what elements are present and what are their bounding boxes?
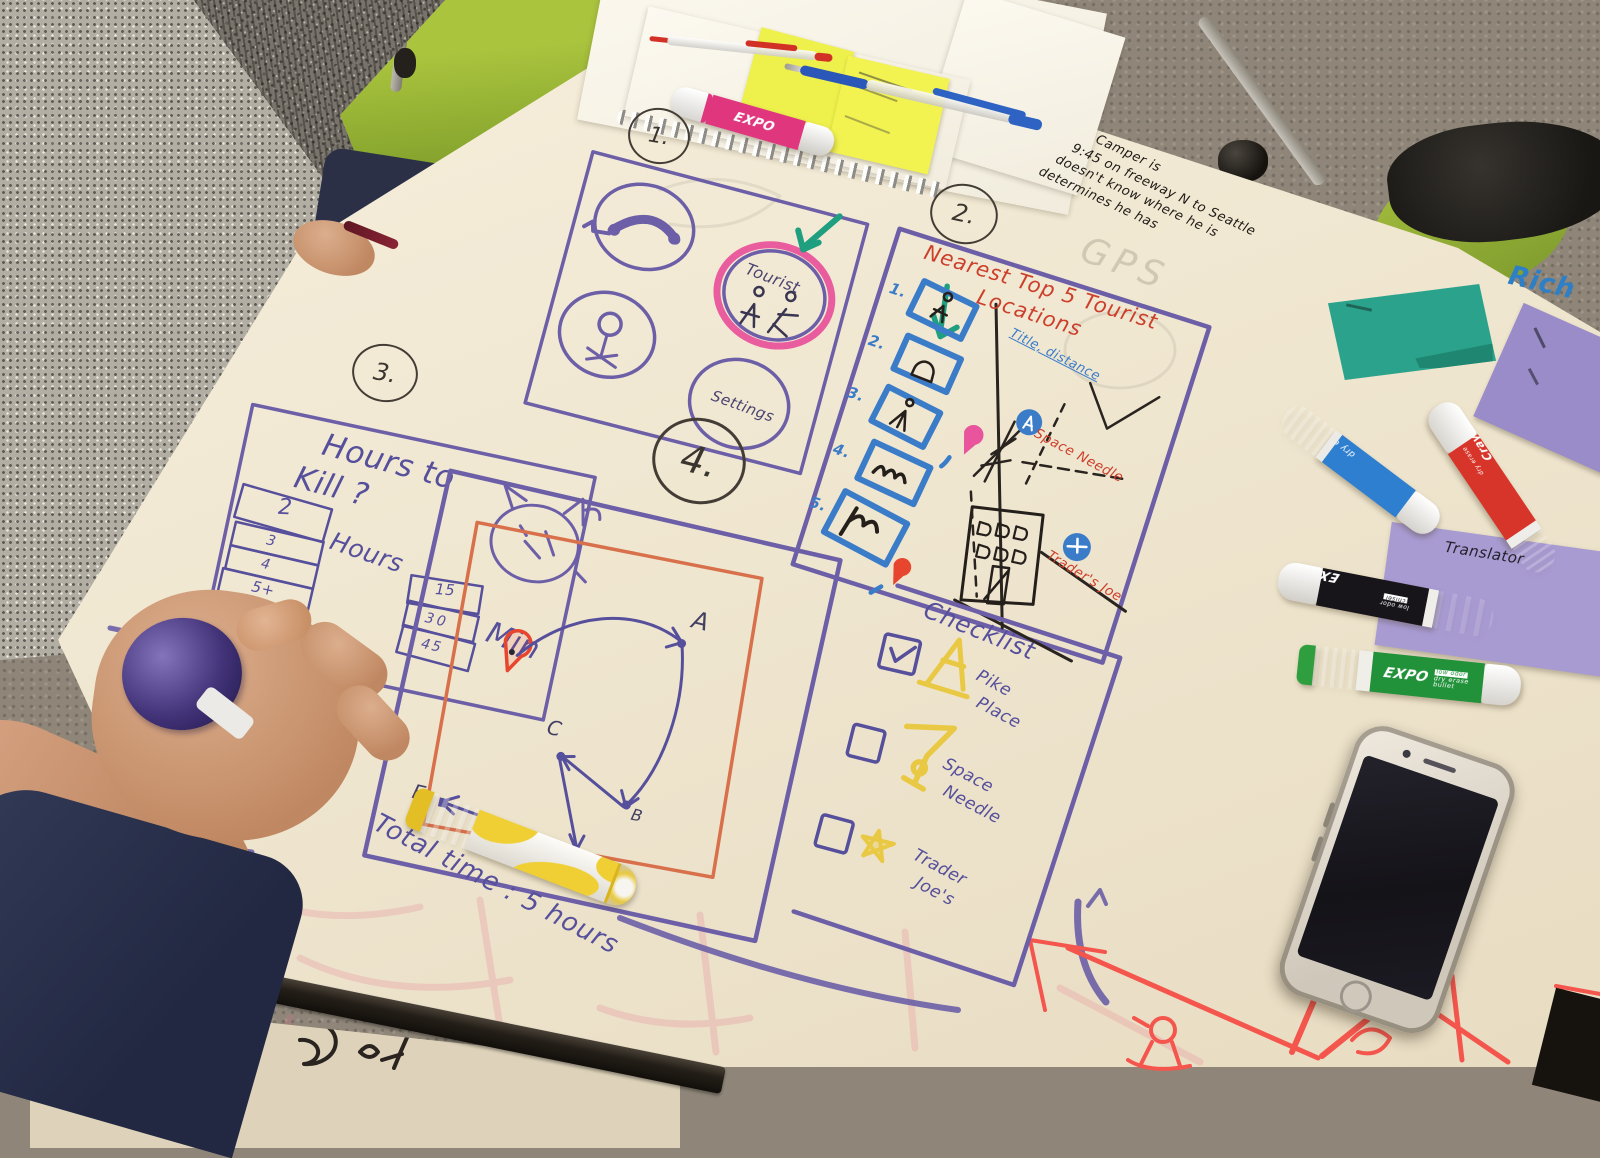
space-needle-icon [891, 715, 955, 793]
checkbox-checked [878, 634, 921, 675]
key-icon [584, 220, 611, 236]
phone-icon [612, 211, 679, 248]
checkbox-empty [847, 724, 886, 763]
expo-green-tip: bullet [1433, 681, 1455, 690]
phone-circle-button [585, 173, 704, 281]
hours-value-1: 2 [278, 497, 294, 520]
start-pin-icon [499, 628, 534, 674]
checkbox-empty [815, 814, 854, 853]
star-icon [857, 827, 896, 863]
iphone-home-button [1336, 976, 1377, 1017]
iphone-camera-icon [1402, 749, 1412, 759]
map-pin-icon [596, 311, 623, 338]
pink-pin-icon [957, 422, 986, 458]
iphone-speaker-icon [1423, 758, 1457, 774]
expo-green-brand: EXPO [1382, 666, 1431, 684]
tourist-figures-icon [739, 284, 767, 327]
check-icon [888, 641, 916, 666]
